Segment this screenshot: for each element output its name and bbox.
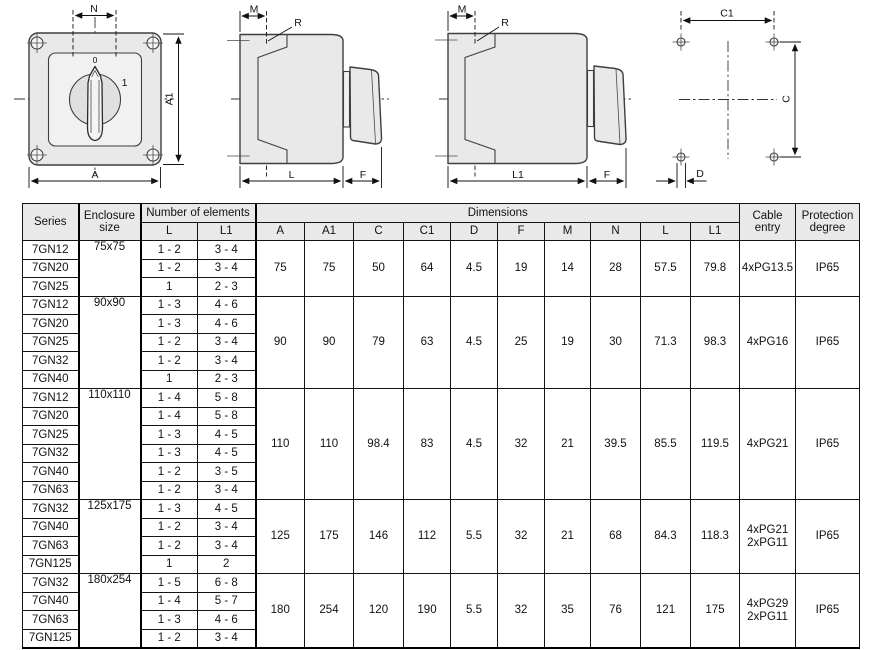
elements-l-cell: 1: [141, 278, 198, 297]
dim-label-n: N: [90, 3, 98, 15]
dim-d-cell: 4.5: [451, 296, 498, 389]
dim-a1-cell: 90: [305, 296, 354, 389]
series-cell: 7GN63: [23, 481, 79, 500]
dim-l1-cell: 98.3: [691, 296, 740, 389]
knob-handle: [88, 67, 103, 141]
dimensions-table: Series Enclosure size Number of elements…: [22, 203, 860, 649]
dim-n-cell: 30: [591, 296, 641, 389]
series-cell: 7GN25: [23, 333, 79, 352]
series-cell: 7GN40: [23, 463, 79, 482]
header-number-of-elements: Number of elements: [141, 204, 256, 223]
header-cable-entry: Cable entry: [740, 204, 796, 241]
dim-c-cell: 79: [354, 296, 404, 389]
knob-collar: [588, 71, 594, 127]
series-cell: 7GN40: [23, 518, 79, 537]
subheader-l: L: [141, 222, 198, 241]
header-enclosure-size: Enclosure size: [79, 204, 141, 241]
dim-l1-cell: 79.8: [691, 241, 740, 297]
dim-c1-cell: 63: [404, 296, 451, 389]
series-cell: 7GN63: [23, 537, 79, 556]
dim-m-cell: 14: [545, 241, 591, 297]
switch-body: [448, 34, 587, 164]
dim-l-cell: 85.5: [641, 389, 691, 500]
elements-l-cell: 1 - 2: [141, 629, 198, 648]
series-cell: 7GN125: [23, 555, 79, 574]
elements-l-cell: 1 - 2: [141, 259, 198, 278]
knob-side: [350, 67, 382, 144]
elements-l-cell: 1 - 2: [141, 333, 198, 352]
elements-l-cell: 1 - 3: [141, 426, 198, 445]
cable-entry-cell: 4xPG21: [740, 389, 796, 500]
side-view-l1-drawing: M R L1 F: [435, 4, 634, 189]
elements-l1-cell: 2 - 3: [198, 370, 256, 389]
elements-l1-cell: 3 - 4: [198, 629, 256, 648]
elements-l-cell: 1 - 4: [141, 592, 198, 611]
enclosure-size-cell: 180x254: [79, 574, 141, 649]
elements-l1-cell: 4 - 5: [198, 444, 256, 463]
series-cell: 7GN20: [23, 315, 79, 334]
elements-l-cell: 1 - 4: [141, 389, 198, 408]
enclosure-size-cell: 75x75: [79, 241, 141, 297]
series-cell: 7GN12: [23, 389, 79, 408]
elements-l-cell: 1 - 3: [141, 444, 198, 463]
elements-l-cell: 1 - 2: [141, 481, 198, 500]
protection-cell: IP65: [796, 574, 860, 649]
knob-collar: [344, 72, 350, 128]
drilling-template-drawing: C1 C D: [656, 8, 801, 189]
elements-l1-cell: 3 - 4: [198, 333, 256, 352]
drill-hole-icon: [673, 149, 690, 166]
cable-entry-cell: 4xPG29 2xPG11: [740, 574, 796, 649]
dim-label-l: L: [289, 169, 295, 181]
elements-l-cell: 1 - 3: [141, 315, 198, 334]
dim-f-cell: 32: [498, 574, 545, 649]
dim-label-a1: A1: [164, 92, 176, 105]
elements-l-cell: 1 - 2: [141, 241, 198, 260]
dim-f-cell: 32: [498, 500, 545, 574]
enclosure-size-cell: 90x90: [79, 296, 141, 389]
elements-l-cell: 1 - 4: [141, 407, 198, 426]
dim-a-cell: 90: [256, 296, 305, 389]
elements-l1-cell: 4 - 6: [198, 296, 256, 315]
enclosure-size-cell: 110x110: [79, 389, 141, 500]
dim-l-cell: 71.3: [641, 296, 691, 389]
switch-body: [240, 35, 343, 164]
dim-c-cell: 120: [354, 574, 404, 649]
dim-d-cell: 4.5: [451, 389, 498, 500]
dim-l1-cell: 119.5: [691, 389, 740, 500]
dim-c1-cell: 112: [404, 500, 451, 574]
series-cell: 7GN32: [23, 500, 79, 519]
dim-label-l1: L1: [512, 169, 524, 181]
series-cell: 7GN12: [23, 296, 79, 315]
datasheet-page: 0 1 N A1 A M R: [0, 0, 874, 650]
enclosure-size-cell: 125x175: [79, 500, 141, 574]
drill-hole-icon: [766, 34, 783, 51]
subheader-c: C: [354, 222, 404, 241]
dim-a-cell: 110: [256, 389, 305, 500]
elements-l1-cell: 6 - 8: [198, 574, 256, 593]
elements-l-cell: 1 - 3: [141, 611, 198, 630]
position-label-one: 1: [122, 77, 128, 89]
dim-n-cell: 28: [591, 241, 641, 297]
front-view-drawing: 0 1 N A1 A: [14, 3, 184, 188]
drill-hole-icon: [673, 34, 690, 51]
elements-l1-cell: 3 - 4: [198, 259, 256, 278]
protection-cell: IP65: [796, 296, 860, 389]
elements-l1-cell: 5 - 8: [198, 389, 256, 408]
elements-l1-cell: 3 - 4: [198, 537, 256, 556]
dim-label-f: F: [360, 169, 366, 181]
series-cell: 7GN125: [23, 629, 79, 648]
subheader-a: A: [256, 222, 305, 241]
dim-c-cell: 98.4: [354, 389, 404, 500]
dim-d-cell: 5.5: [451, 500, 498, 574]
elements-l-cell: 1: [141, 555, 198, 574]
dim-c-cell: 50: [354, 241, 404, 297]
dim-label-d: D: [696, 168, 704, 180]
series-cell: 7GN12: [23, 241, 79, 260]
series-cell: 7GN20: [23, 259, 79, 278]
dim-n-cell: 39.5: [591, 389, 641, 500]
elements-l1-cell: 4 - 5: [198, 426, 256, 445]
dim-n-cell: 68: [591, 500, 641, 574]
dim-c-cell: 146: [354, 500, 404, 574]
elements-l-cell: 1 - 2: [141, 518, 198, 537]
subheader-c1: C1: [404, 222, 451, 241]
dim-f-cell: 25: [498, 296, 545, 389]
subheader-l1: L1: [198, 222, 256, 241]
dim-f-cell: 19: [498, 241, 545, 297]
cable-entry-cell: 4xPG21 2xPG11: [740, 500, 796, 574]
subheader-d: D: [451, 222, 498, 241]
drill-hole-icon: [766, 149, 783, 166]
technical-drawings: 0 1 N A1 A M R: [0, 0, 874, 200]
dim-label-m: M: [458, 4, 467, 16]
elements-l-cell: 1 - 5: [141, 574, 198, 593]
series-cell: 7GN25: [23, 426, 79, 445]
series-cell: 7GN25: [23, 278, 79, 297]
dim-label-r: R: [501, 17, 509, 29]
position-label-zero: 0: [93, 55, 98, 65]
dim-label-c: C: [781, 95, 793, 103]
elements-l-cell: 1 - 2: [141, 537, 198, 556]
dim-c1-cell: 64: [404, 241, 451, 297]
dim-c1-cell: 190: [404, 574, 451, 649]
dim-f-cell: 32: [498, 389, 545, 500]
knob-side: [594, 66, 626, 145]
elements-l1-cell: 4 - 5: [198, 500, 256, 519]
dim-d-cell: 4.5: [451, 241, 498, 297]
protection-cell: IP65: [796, 389, 860, 500]
series-cell: 7GN32: [23, 444, 79, 463]
elements-l1-cell: 4 - 6: [198, 611, 256, 630]
dim-a1-cell: 254: [305, 574, 354, 649]
elements-l1-cell: 3 - 4: [198, 481, 256, 500]
cable-entry-cell: 4xPG16: [740, 296, 796, 389]
dim-n-cell: 76: [591, 574, 641, 649]
elements-l1-cell: 3 - 4: [198, 352, 256, 371]
dim-m-cell: 21: [545, 389, 591, 500]
series-cell: 7GN40: [23, 592, 79, 611]
dim-m-cell: 19: [545, 296, 591, 389]
elements-l-cell: 1 - 3: [141, 500, 198, 519]
dim-a-cell: 125: [256, 500, 305, 574]
header-dimensions: Dimensions: [256, 204, 740, 223]
dim-m-cell: 21: [545, 500, 591, 574]
subheader-l1-dim: L1: [691, 222, 740, 241]
subheader-f: F: [498, 222, 545, 241]
subheader-l-dim: L: [641, 222, 691, 241]
elements-l1-cell: 2 - 3: [198, 278, 256, 297]
dim-m-cell: 35: [545, 574, 591, 649]
dim-a1-cell: 175: [305, 500, 354, 574]
dim-l-cell: 121: [641, 574, 691, 649]
dim-l-cell: 84.3: [641, 500, 691, 574]
cable-entry-cell: 4xPG13.5: [740, 241, 796, 297]
subheader-a1: A1: [305, 222, 354, 241]
elements-l-cell: 1 - 3: [141, 296, 198, 315]
elements-l-cell: 1 - 2: [141, 463, 198, 482]
header-series: Series: [23, 204, 79, 241]
elements-l1-cell: 3 - 5: [198, 463, 256, 482]
dim-a1-cell: 75: [305, 241, 354, 297]
dim-d-cell: 5.5: [451, 574, 498, 649]
series-cell: 7GN32: [23, 574, 79, 593]
dim-label-a: A: [91, 169, 98, 181]
elements-l1-cell: 5 - 8: [198, 407, 256, 426]
dim-label-r: R: [294, 17, 302, 29]
elements-l1-cell: 3 - 4: [198, 518, 256, 537]
dim-l1-cell: 175: [691, 574, 740, 649]
dim-label-m: M: [250, 4, 259, 16]
elements-l1-cell: 5 - 7: [198, 592, 256, 611]
elements-l-cell: 1: [141, 370, 198, 389]
protection-cell: IP65: [796, 500, 860, 574]
dim-a1-cell: 110: [305, 389, 354, 500]
dim-a-cell: 180: [256, 574, 305, 649]
elements-l1-cell: 3 - 4: [198, 241, 256, 260]
dim-a-cell: 75: [256, 241, 305, 297]
series-cell: 7GN20: [23, 407, 79, 426]
dim-l1-cell: 118.3: [691, 500, 740, 574]
series-cell: 7GN40: [23, 370, 79, 389]
subheader-m: M: [545, 222, 591, 241]
subheader-n: N: [591, 222, 641, 241]
series-cell: 7GN63: [23, 611, 79, 630]
series-cell: 7GN32: [23, 352, 79, 371]
dim-l-cell: 57.5: [641, 241, 691, 297]
dim-c1-cell: 83: [404, 389, 451, 500]
elements-l1-cell: 2: [198, 555, 256, 574]
dim-label-c1: C1: [720, 8, 734, 20]
side-view-l-drawing: M R L F: [227, 4, 389, 189]
header-protection-degree: Protection degree: [796, 204, 860, 241]
elements-l1-cell: 4 - 6: [198, 315, 256, 334]
elements-l-cell: 1 - 2: [141, 352, 198, 371]
dim-label-f: F: [604, 169, 610, 181]
protection-cell: IP65: [796, 241, 860, 297]
